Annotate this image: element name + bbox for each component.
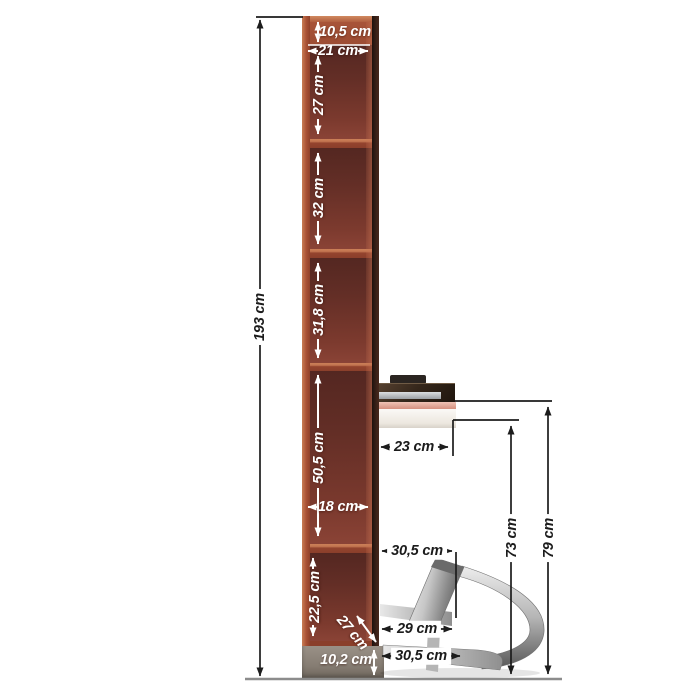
dim-label-desk-depth: 23 cm — [390, 439, 438, 456]
dim-label-stool-seat-width: 29 cm — [393, 621, 441, 638]
dim-label-inner-width: 18 cm — [318, 500, 358, 515]
dim-label-outer-width: 21 cm — [318, 44, 358, 59]
black-dimensions — [256, 17, 552, 676]
dim-label-compartment-5: 22,5 cm — [308, 571, 323, 623]
dim-label-desk-clearance: 73 cm — [504, 514, 521, 562]
dim-label-total-height: 193 cm — [252, 289, 269, 345]
dim-label-compartment-1: 27 cm — [312, 75, 327, 115]
dim-label-top-depth: 10,5 cm — [319, 25, 371, 40]
dim-label-compartment-4: 50,5 cm — [312, 432, 327, 484]
dimension-lines — [0, 0, 700, 700]
diagram-canvas: 10,5 cm 21 cm 27 cm 32 cm 31,8 cm 193 cm… — [0, 0, 700, 700]
dim-label-compartment-2: 32 cm — [312, 178, 327, 218]
dim-label-stool-base-width: 30,5 cm — [391, 648, 451, 665]
dim-label-compartment-3: 31,8 cm — [312, 284, 327, 336]
dim-label-desk-surface-height: 79 cm — [541, 514, 558, 562]
dim-label-plinth-height: 10,2 cm — [320, 653, 372, 668]
dim-label-stool-top-width: 30,5 cm — [387, 543, 447, 560]
